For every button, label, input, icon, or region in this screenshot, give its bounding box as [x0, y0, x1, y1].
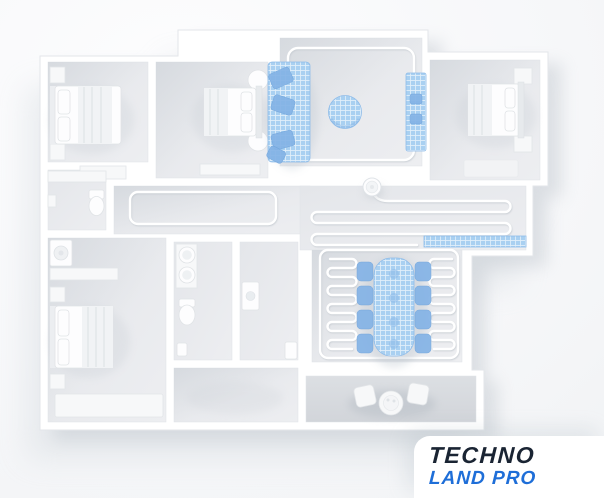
floor-plan-render	[0, 0, 604, 498]
nightstand	[514, 136, 532, 152]
bidet	[177, 343, 187, 356]
shelf	[50, 268, 118, 280]
pillow	[241, 92, 252, 111]
bed-headboard	[518, 82, 524, 138]
pillow	[58, 90, 70, 114]
bed	[468, 82, 524, 138]
building	[40, 30, 548, 430]
balcony-chair	[406, 382, 429, 405]
brand-logo-card: TECHNO LAND PRO	[414, 436, 604, 498]
washing-machine	[50, 240, 72, 266]
sofa-highlighted	[266, 62, 310, 164]
pillow	[58, 117, 70, 141]
bed-headboard	[256, 86, 262, 138]
pillow	[58, 310, 69, 336]
nightstand	[50, 144, 65, 160]
room-entry-hall	[174, 368, 298, 422]
pillow	[505, 111, 515, 131]
low-cabinet	[55, 394, 163, 417]
bed	[55, 86, 121, 144]
toilet	[89, 190, 104, 216]
dining-chair	[415, 262, 431, 281]
balcony-chair	[353, 384, 377, 408]
nightstand	[50, 67, 65, 83]
sink-unit	[285, 342, 297, 359]
kitchen-counter-highlighted	[424, 236, 526, 247]
pillow	[241, 113, 252, 132]
bed	[55, 306, 113, 368]
bed	[204, 86, 262, 138]
wall-fixture	[48, 195, 56, 207]
brand-name-line1: TECHNO	[428, 443, 604, 468]
balcony-table	[379, 391, 403, 415]
dining-chair	[415, 334, 431, 353]
dresser	[200, 164, 260, 175]
nightstand	[50, 374, 65, 389]
dining-chair	[415, 286, 431, 305]
bedside-rug	[464, 160, 518, 177]
toilet	[179, 299, 195, 325]
dining-chair	[357, 286, 373, 305]
dining-chair	[415, 310, 431, 329]
pillow	[505, 88, 515, 108]
shelf	[48, 171, 106, 182]
round-rug-highlighted	[329, 96, 362, 129]
dining-chair	[357, 262, 373, 281]
floor-plan-scene: TECHNO LAND PRO	[0, 0, 604, 498]
pillow	[58, 339, 69, 365]
tv-console-highlighted	[406, 73, 426, 151]
dining-chair	[357, 334, 373, 353]
nightstand	[50, 287, 65, 302]
brand-name-line2: LAND PRO	[428, 468, 604, 490]
dining-chair	[357, 310, 373, 329]
shower-unit	[242, 282, 259, 310]
dining-set-highlighted	[357, 256, 431, 368]
nightstand	[514, 68, 532, 84]
